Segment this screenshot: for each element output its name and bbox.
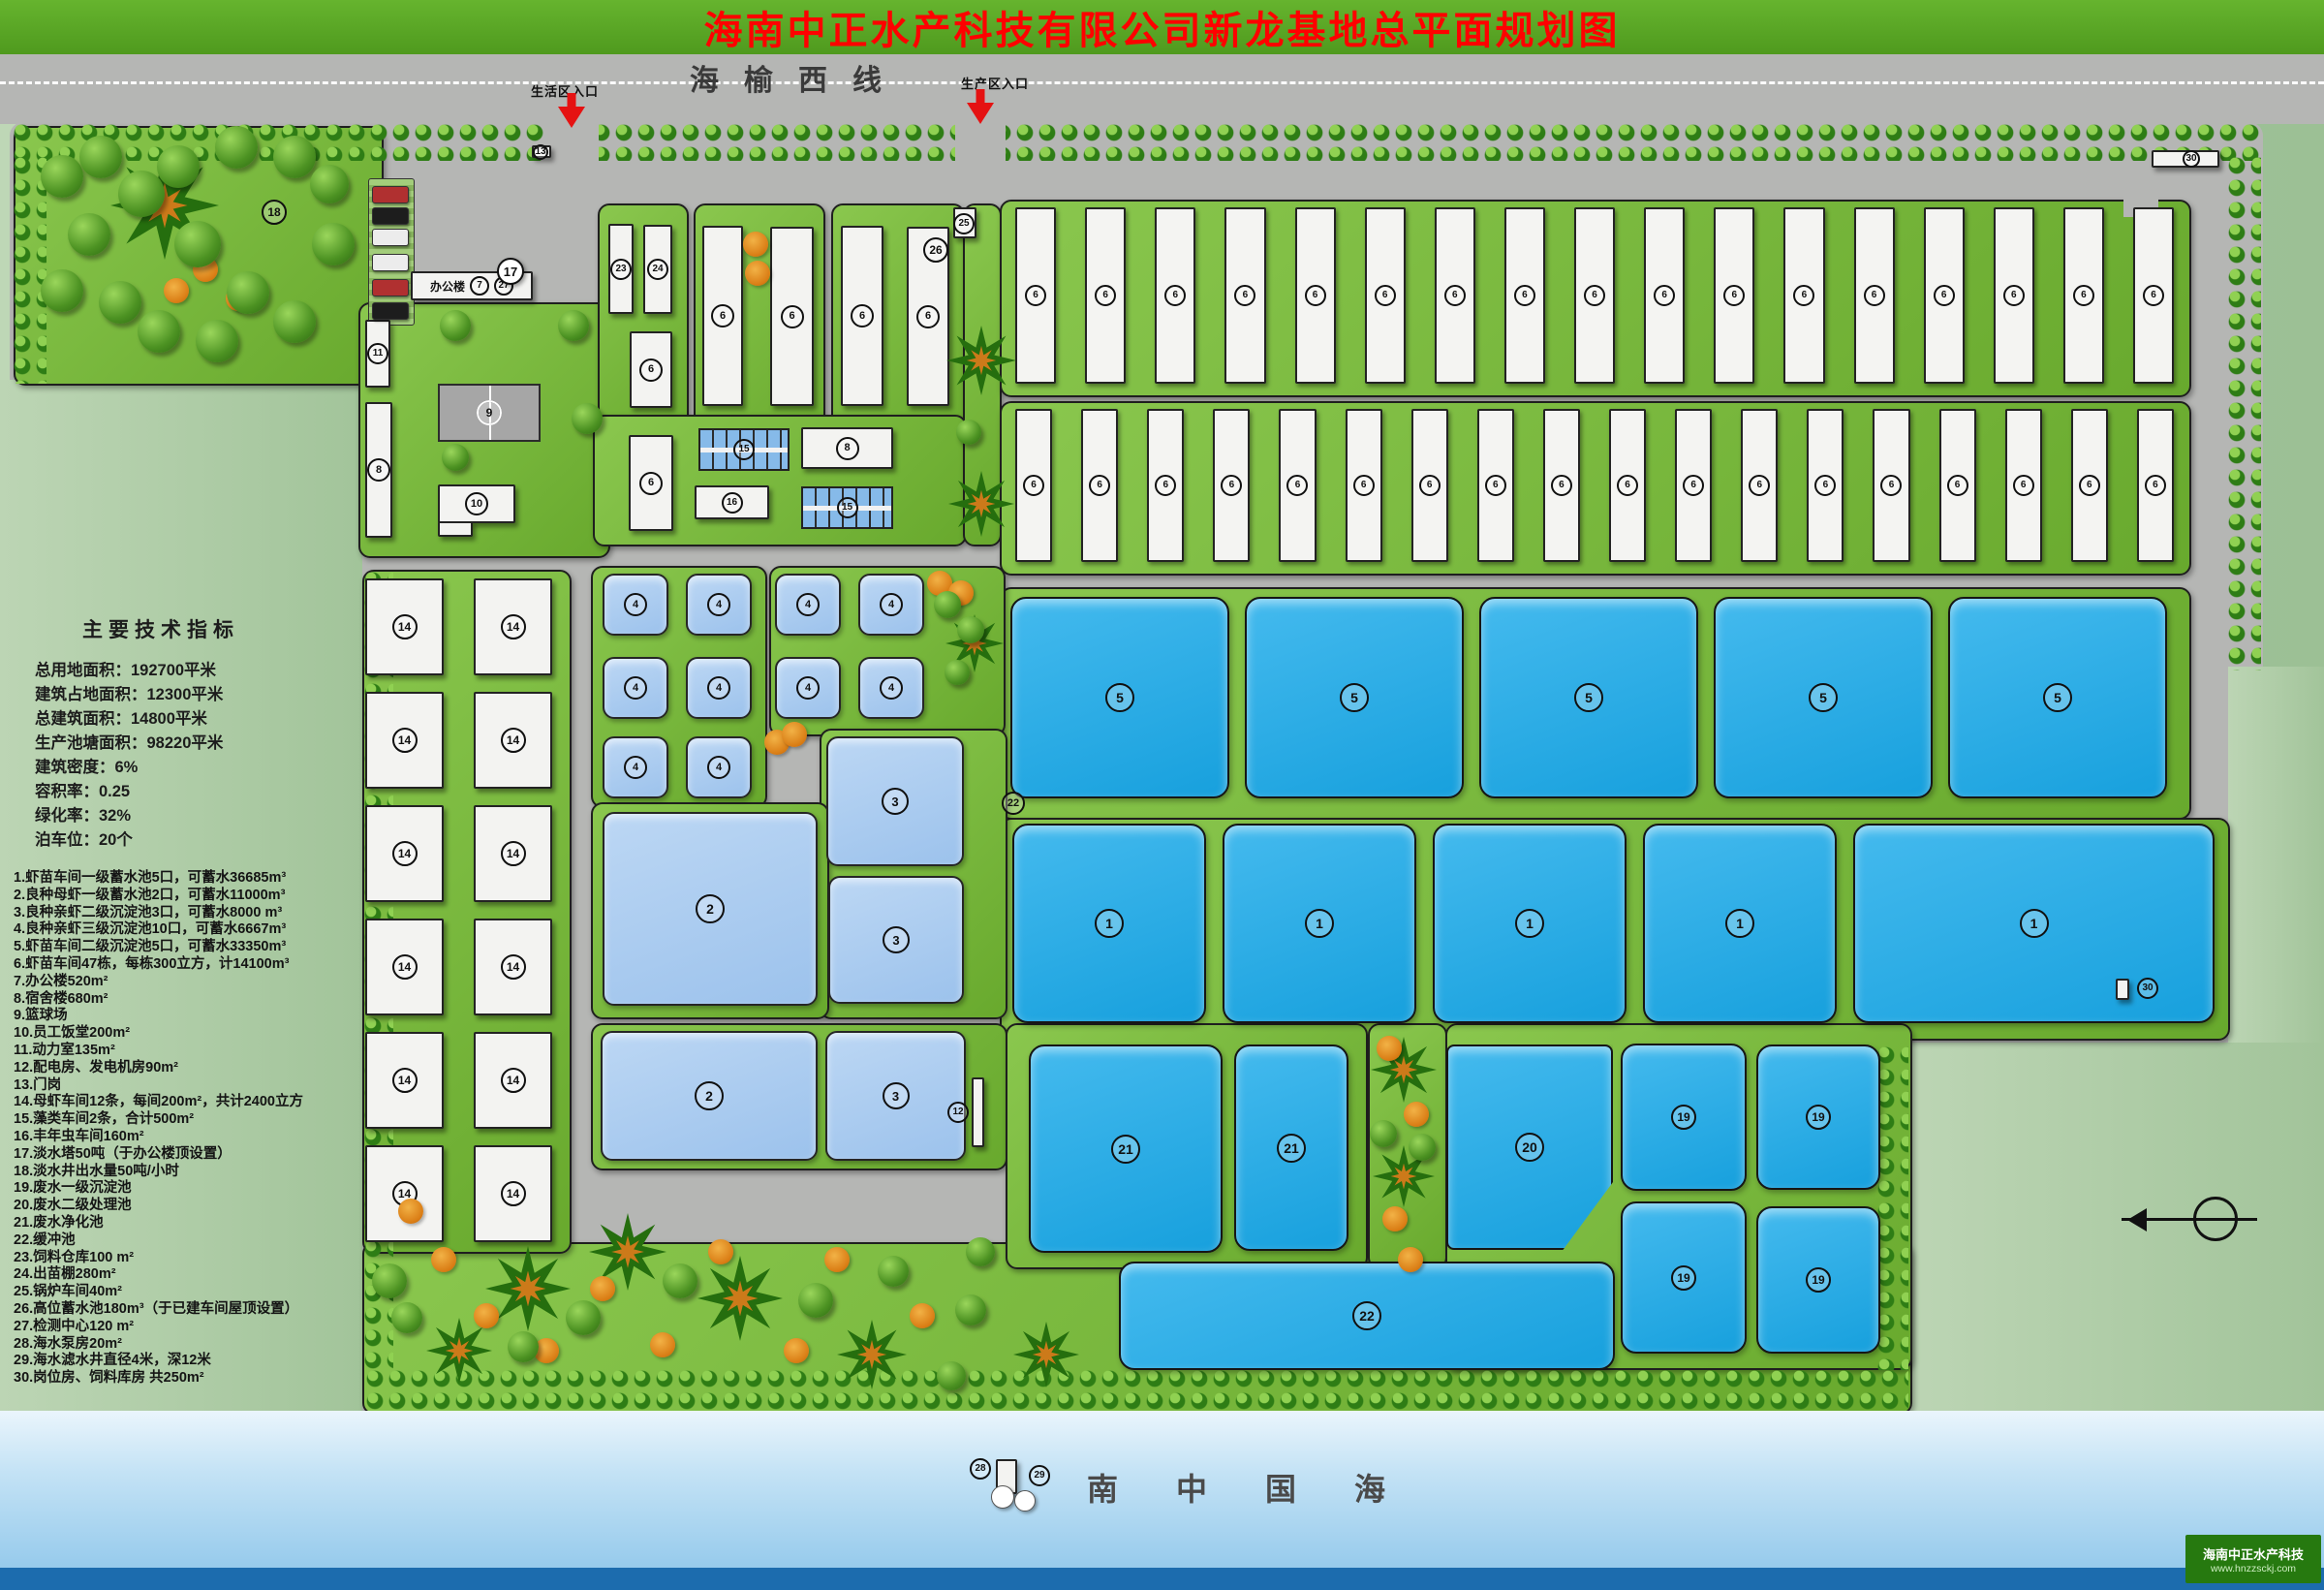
- flower-bush-icon: [910, 1303, 935, 1328]
- label-circle-5: 5: [1809, 683, 1838, 712]
- label-circle-24: 24: [647, 259, 668, 280]
- storage-pond-2: 2: [601, 1031, 818, 1161]
- legend-line: 21.废水净化池: [14, 1215, 367, 1232]
- label-circle-19: 19: [1671, 1265, 1696, 1291]
- palm-tree-icon: [946, 326, 1016, 395]
- tech-indicator-line: 生产池塘面积：98220平米: [35, 732, 364, 756]
- tree-icon: [138, 310, 180, 353]
- compass-icon: [2122, 1192, 2257, 1250]
- road-centerline: [0, 81, 2324, 84]
- palm-tree-icon: [948, 471, 1014, 537]
- tree-icon: [572, 403, 603, 434]
- storage-pond-1: 1: [1643, 824, 1837, 1023]
- label-circle-6: 6: [1793, 285, 1814, 306]
- label-circle-14: 14: [392, 954, 418, 980]
- shrimp-shed: 6: [1609, 409, 1646, 562]
- label-circle-6: 6: [851, 304, 874, 327]
- sediment-pond-4: 4: [686, 657, 752, 719]
- parked-car: [372, 302, 409, 320]
- gate-house-label: 13: [533, 144, 548, 160]
- sediment-pond-4: 4: [858, 574, 924, 636]
- broodstock-shed-14: 14: [474, 1145, 552, 1242]
- legend-line: 24.出苗棚280m²: [14, 1266, 367, 1284]
- label-circle-14: 14: [501, 1068, 526, 1093]
- label-circle-6: 6: [1221, 475, 1242, 496]
- label-circle-6: 6: [1444, 285, 1466, 306]
- legend-line: 18.淡水井出水量50吨/小时: [14, 1164, 367, 1181]
- label-circle-14: 14: [392, 1068, 418, 1093]
- sediment-pond-3: 3: [828, 876, 964, 1004]
- label-circle-10: 10: [465, 492, 488, 515]
- palm-core: [723, 1281, 759, 1317]
- sediment-pond-4: 4: [858, 657, 924, 719]
- label-circle-21: 21: [1111, 1135, 1140, 1164]
- sea-area: [0, 1411, 2324, 1590]
- palm-core: [1033, 1341, 1061, 1369]
- palm-tree-icon: [1013, 1322, 1079, 1387]
- tree-icon: [215, 126, 258, 169]
- label-circle-5: 5: [1340, 683, 1369, 712]
- hedge-east-lower: [1875, 1044, 1908, 1370]
- hedge-south: [364, 1368, 1908, 1411]
- tech-indicators-lines: 总用地面积：192700平米建筑占地面积：12300平米总建筑面积：14800平…: [35, 659, 364, 853]
- label-circle-9: 9: [477, 400, 502, 425]
- label-circle-4: 4: [796, 593, 820, 616]
- label-circle-6: 6: [639, 472, 663, 495]
- tree-icon: [41, 269, 83, 312]
- canteen: 10: [438, 484, 515, 523]
- shrimp-shed: 6: [1675, 409, 1712, 562]
- legend-line: 1.虾苗车间一级蓄水池5口，可蓄水36685m³: [14, 870, 367, 888]
- palm-core: [967, 346, 996, 375]
- label-circle-6: 6: [2013, 475, 2034, 496]
- label-circle-6: 6: [2073, 285, 2094, 306]
- tree-icon: [157, 145, 200, 188]
- tree-icon: [798, 1283, 833, 1318]
- label-circle-6: 6: [1095, 285, 1116, 306]
- buffer-strip-label: 22: [1002, 792, 1025, 815]
- tree-icon: [508, 1331, 539, 1362]
- broodstock-shed-14: 14: [474, 919, 552, 1015]
- label-circle-5: 5: [1105, 683, 1134, 712]
- legend-panel: 1.虾苗车间一级蓄水池5口，可蓄水36685m³2.良种母虾一级蓄水池2口，可蓄…: [14, 870, 367, 1387]
- tech-indicator-line: 容积率：0.25: [35, 780, 364, 804]
- shrimp-shed: 6: [1807, 409, 1844, 562]
- label-circle-3: 3: [883, 926, 910, 953]
- label-circle-2: 2: [696, 894, 725, 923]
- broodstock-shed-14: 14: [365, 805, 444, 902]
- shrimp-shed: 6: [1224, 207, 1265, 384]
- shrimp-shed: 6: [1741, 409, 1778, 562]
- algae-shed: 15: [698, 428, 790, 471]
- label-circle-19: 19: [1806, 1105, 1831, 1130]
- broodstock-shed-14: 14: [365, 578, 444, 675]
- storage-pond-2: 2: [603, 812, 818, 1006]
- label-circle-19: 19: [1806, 1267, 1831, 1293]
- label-circle-6: 6: [1683, 475, 1704, 496]
- storage-pond-1: 1: [1012, 824, 1206, 1023]
- shrimp-shed: 6: [1435, 207, 1475, 384]
- shrimp-shed: 6: [1873, 409, 1909, 562]
- tree-icon: [1409, 1134, 1436, 1161]
- label-circle-4: 4: [880, 676, 903, 700]
- label-circle-6: 6: [1654, 285, 1675, 306]
- legend-line: 4.良种亲虾三级沉淀池10口，可蓄水6667m³: [14, 921, 367, 939]
- shrimp-shed: 6: [2133, 207, 2174, 384]
- tech-indicator-line: 建筑密度：6%: [35, 756, 364, 780]
- shrimp-shed: 6: [1783, 207, 1824, 384]
- hedge-east-upper: [2226, 155, 2261, 670]
- tech-indicator-line: 总建筑面积：14800平米: [35, 707, 364, 732]
- legend-line: 19.废水一级沉淀池: [14, 1180, 367, 1198]
- label-circle-6: 6: [639, 359, 663, 382]
- legend-line: 7.办公楼520m²: [14, 974, 367, 991]
- tree-icon: [273, 136, 316, 178]
- legend-line: 30.岗位房、饲料库房 共250m²: [14, 1370, 367, 1387]
- broodstock-shed-14: 14: [474, 1032, 552, 1129]
- tree-icon: [1370, 1120, 1397, 1147]
- parked-car: [372, 279, 409, 296]
- legend-line: 12.配电房、发电机房90m²: [14, 1060, 367, 1077]
- tree-icon: [442, 444, 469, 471]
- tree-icon: [174, 221, 221, 267]
- legend-line: 9.篮球场: [14, 1008, 367, 1025]
- tree-icon: [937, 1361, 966, 1390]
- guard-feed-store-label: 30: [2183, 150, 2200, 168]
- label-circle-4: 4: [624, 593, 647, 616]
- shrimp-shed: 6: [1504, 207, 1545, 384]
- tree-icon: [68, 213, 110, 256]
- feed-warehouse: 23: [608, 224, 634, 314]
- entry-arrow-living: [558, 93, 585, 132]
- parked-car: [372, 186, 409, 203]
- label-circle-1: 1: [1515, 909, 1544, 938]
- flower-bush-icon: [590, 1276, 615, 1301]
- shrimp-shed: 6: [2071, 409, 2108, 562]
- tree-icon: [196, 320, 238, 362]
- label-circle-6: 6: [1514, 285, 1535, 306]
- label-circle-6: 6: [916, 305, 940, 328]
- legend-line: 29.海水滤水井直径4米，深12米: [14, 1353, 367, 1370]
- label-circle-1: 1: [1305, 909, 1334, 938]
- label-circle-4: 4: [796, 676, 820, 700]
- sediment-pond-5: 5: [1245, 597, 1464, 798]
- label-circle-6: 6: [781, 305, 804, 328]
- tree-icon: [41, 155, 83, 198]
- tree-icon: [558, 310, 589, 341]
- palm-core: [968, 490, 996, 518]
- shrimp-shed: 6: [2137, 409, 2174, 562]
- shrimp-shed: 6: [1346, 409, 1382, 562]
- label-circle-6: 6: [711, 304, 734, 327]
- label-circle-6: 6: [1814, 475, 1836, 496]
- logo-company-name: 海南中正水产科技: [2203, 1544, 2304, 1563]
- label-circle-14: 14: [392, 841, 418, 866]
- purification-pond: 21: [1029, 1044, 1223, 1253]
- label-circle-6: 6: [1305, 285, 1326, 306]
- label-circle-1: 1: [1095, 909, 1124, 938]
- shrimp-shed: 6: [1543, 409, 1580, 562]
- shrimp-shed: 6: [630, 331, 672, 408]
- flower-bush-icon: [824, 1247, 850, 1272]
- label-circle-6: 6: [1419, 475, 1441, 496]
- label-circle-6: 6: [2003, 285, 2025, 306]
- shrimp-shed: 6: [1644, 207, 1685, 384]
- legend-line: 13.门岗: [14, 1077, 367, 1095]
- shrimp-shed: 6: [1213, 409, 1250, 562]
- legend-line: 14.母虾车间12条，每间200m²，共计2400立方: [14, 1094, 367, 1111]
- tech-indicator-line: 建筑占地面积：12300平米: [35, 683, 364, 707]
- flower-bush-icon: [1377, 1036, 1402, 1061]
- label-circle-6: 6: [1723, 285, 1745, 306]
- storage-pond-1: 1: [1223, 824, 1416, 1023]
- shrimp-shed: 6: [1714, 207, 1754, 384]
- sediment-pond-5: 5: [1479, 597, 1698, 798]
- parked-car: [372, 229, 409, 246]
- tech-indicator-line: 总用地面积：192700平米: [35, 659, 364, 683]
- guard-post-east: [2116, 979, 2129, 1000]
- purification-pond: 21: [1234, 1044, 1348, 1251]
- company-logo: 海南中正水产科技 www.hnzzsckj.com: [2185, 1535, 2321, 1583]
- basketball-court: 9: [438, 384, 541, 442]
- flower-bush-icon: [1382, 1206, 1408, 1231]
- label-circle-6: 6: [1164, 285, 1186, 306]
- flower-bush-icon: [1398, 1247, 1423, 1272]
- label-circle-6: 6: [1155, 475, 1176, 496]
- broodstock-shed-14: 14: [365, 1032, 444, 1129]
- tree-icon: [966, 1237, 995, 1266]
- palm-core: [511, 1271, 546, 1307]
- shrimp-shed: 6: [702, 226, 743, 406]
- shrimp-shed: 6: [1924, 207, 1965, 384]
- tree-icon: [956, 420, 981, 445]
- label-circle-14: 14: [501, 728, 526, 753]
- sediment-pond-5: 5: [1714, 597, 1933, 798]
- palm-tree-icon: [837, 1320, 907, 1389]
- buffer-pond: 22: [1119, 1262, 1615, 1370]
- canteen-wing: [438, 521, 473, 537]
- site-plan-stage: 海南中正水产科技有限公司新龙基地总平面规划图 9办公楼7271711810232…: [0, 0, 2324, 1590]
- legend-line: 5.虾苗车间二级沉淀池5口，可蓄水33350m³: [14, 939, 367, 956]
- label-circle-6: 6: [1584, 285, 1605, 306]
- tree-icon: [878, 1256, 909, 1287]
- parked-car: [372, 254, 409, 271]
- label-circle-6: 6: [2145, 475, 2166, 496]
- sediment-pond-5: 5: [1948, 597, 2167, 798]
- shrimp-shed: 6: [629, 435, 673, 531]
- label-circle-6: 6: [2143, 285, 2164, 306]
- shrimp-shed: 6: [1411, 409, 1448, 562]
- artemia-shed: 16: [695, 485, 769, 519]
- shrimp-shed: 6: [1574, 207, 1615, 384]
- palm-core: [611, 1235, 644, 1268]
- tech-indicators-panel: 主要技术指标 总用地面积：192700平米建筑占地面积：12300平米总建筑面积…: [35, 614, 364, 853]
- broodstock-shed-14: 14: [365, 1145, 444, 1242]
- shrimp-shed: 6: [1994, 207, 2034, 384]
- flower-bush-icon: [745, 261, 770, 286]
- legend-line: 26.高位蓄水池180m³（于已建车间屋顶设置）: [14, 1301, 367, 1319]
- freshwater-well-label: 18: [262, 200, 287, 225]
- label-circle-6: 6: [1375, 285, 1396, 306]
- legend-line: 20.废水二级处理池: [14, 1198, 367, 1215]
- generator-room: [972, 1077, 984, 1147]
- tree-icon: [227, 271, 269, 314]
- tree-icon: [957, 616, 984, 643]
- label-circle-14: 14: [392, 614, 418, 639]
- legend-line: 22.缓冲池: [14, 1232, 367, 1250]
- legend-line: 8.宿舍楼680m²: [14, 991, 367, 1009]
- broodstock-shed-14: 14: [474, 805, 552, 902]
- power-room: 11: [365, 320, 390, 388]
- storage-pond-1: 1: [1853, 824, 2215, 1023]
- label-circle-15: 15: [837, 497, 858, 518]
- label-circle-21: 21: [1277, 1134, 1306, 1163]
- legend-line: 25.锅炉车间40m²: [14, 1284, 367, 1301]
- shrimp-shed: 6: [2063, 207, 2104, 384]
- label-circle-6: 6: [2079, 475, 2100, 496]
- generator-label: 12: [947, 1102, 969, 1123]
- palm-core: [1391, 1164, 1417, 1190]
- shrimp-shed: 6: [1015, 409, 1052, 562]
- label-circle-6: 6: [1617, 475, 1638, 496]
- label-circle-1: 1: [1725, 909, 1754, 938]
- office-building-label: 办公楼: [430, 278, 465, 295]
- shrimp-shed: 6: [1015, 207, 1056, 384]
- label-circle-5: 5: [1574, 683, 1603, 712]
- sediment-pond-5: 5: [1010, 597, 1229, 798]
- label-circle-6: 6: [1749, 475, 1770, 496]
- flower-bush-icon: [743, 232, 768, 257]
- shrimp-shed: 6: [1939, 409, 1976, 562]
- label-circle-11: 11: [367, 343, 388, 364]
- label-circle-4: 4: [707, 676, 730, 700]
- label-circle-8: 8: [836, 437, 859, 460]
- sediment-pond-4: 4: [686, 574, 752, 636]
- legend-line: 2.良种母虾一级蓄水池2口，可蓄水11000m³: [14, 888, 367, 905]
- tree-icon: [391, 1302, 422, 1333]
- flower-bush-icon: [708, 1239, 733, 1264]
- sea-deep-band: [0, 1568, 2324, 1590]
- tree-icon: [99, 281, 141, 324]
- legend-line: 15.藻类车间2条，合计500m²: [14, 1111, 367, 1129]
- algae-shed: 15: [801, 486, 893, 529]
- sediment-pond-4: 4: [775, 574, 841, 636]
- tree-icon: [118, 171, 165, 217]
- sediment-pond-3: 3: [825, 1031, 966, 1161]
- broodstock-shed-14: 14: [365, 919, 444, 1015]
- label-circle-20: 20: [1515, 1133, 1544, 1162]
- label-circle-2: 2: [695, 1081, 724, 1110]
- label-circle-6: 6: [1025, 285, 1046, 306]
- sediment-pond-4: 4: [603, 736, 668, 798]
- shrimp-shed: 6: [1295, 207, 1336, 384]
- label-circle-7: 7: [470, 276, 489, 296]
- logo-website: www.hnzzsckj.com: [2211, 1563, 2296, 1574]
- tree-icon: [566, 1300, 601, 1335]
- shrimp-shed: 6: [1854, 207, 1895, 384]
- tree-icon: [934, 591, 961, 618]
- label-circle-15: 15: [733, 439, 755, 460]
- dormitory-west: 8: [365, 402, 392, 538]
- tree-icon: [273, 300, 316, 343]
- label-circle-4: 4: [707, 756, 730, 779]
- wastewater-pond: 19: [1621, 1044, 1747, 1191]
- tech-indicators-title: 主要技术指标: [35, 614, 287, 643]
- road-name: 海榆西线: [690, 56, 907, 99]
- sediment-pond-4: 4: [686, 736, 752, 798]
- broodstock-shed-14: 14: [365, 692, 444, 789]
- label-circle-8: 8: [367, 458, 390, 482]
- tree-icon: [310, 165, 349, 203]
- guard-post-east-label: 30: [2137, 978, 2158, 999]
- label-circle-6: 6: [1485, 475, 1506, 496]
- label-circle-19: 19: [1671, 1105, 1696, 1130]
- tree-icon: [955, 1294, 986, 1325]
- label-circle-16: 16: [722, 492, 743, 514]
- label-circle-6: 6: [1089, 475, 1110, 496]
- flower-bush-icon: [164, 278, 189, 303]
- label-circle-3: 3: [883, 1082, 910, 1109]
- entry-arrow-production: [967, 89, 994, 128]
- label-circle-4: 4: [880, 593, 903, 616]
- water-tower-label: 17: [497, 258, 524, 285]
- tech-indicator-line: 泊车位：20个: [35, 828, 364, 853]
- storage-pond-1: 1: [1433, 824, 1627, 1023]
- shrimp-shed: 6: [770, 227, 814, 406]
- compass-arrowhead: [2116, 1208, 2147, 1231]
- label-circle-23: 23: [610, 259, 632, 280]
- arrow-head: [967, 103, 994, 138]
- shed-row-north: 66666666666666666: [1015, 207, 2174, 384]
- fry-shed: 24: [643, 225, 672, 314]
- label-circle-14: 14: [501, 614, 526, 639]
- label-circle-6: 6: [1353, 475, 1375, 496]
- label-circle-4: 4: [707, 593, 730, 616]
- tech-indicator-line: 绿化率：32%: [35, 804, 364, 828]
- legend-line: 28.海水泵房20m²: [14, 1336, 367, 1354]
- label-circle-6: 6: [1947, 475, 1968, 496]
- label-circle-14: 14: [501, 954, 526, 980]
- parked-car: [372, 207, 409, 225]
- hedge-north: [12, 122, 2261, 161]
- wastewater-pond: 19: [1621, 1201, 1747, 1354]
- wastewater-pond: 19: [1756, 1044, 1880, 1190]
- label-circle-6: 6: [1023, 475, 1044, 496]
- tree-icon: [79, 136, 122, 178]
- tree-icon: [372, 1263, 407, 1298]
- legend-line: 3.良种亲虾二级沉淀池3口，可蓄水8000 m³: [14, 905, 367, 922]
- shrimp-shed: 6: [2005, 409, 2042, 562]
- broodstock-shed-14: 14: [474, 578, 552, 675]
- compass-ring: [2193, 1197, 2238, 1241]
- label-circle-22: 22: [1352, 1301, 1381, 1330]
- label-circle-6: 6: [1934, 285, 1955, 306]
- palm-core: [857, 1340, 886, 1369]
- broodstock-shed-14: 14: [474, 692, 552, 789]
- palm-core: [446, 1337, 474, 1365]
- rooftop-tank-label: 26: [923, 237, 948, 263]
- label-circle-6: 6: [1864, 285, 1885, 306]
- label-circle-1: 1: [2020, 909, 2049, 938]
- label-circle-4: 4: [624, 756, 647, 779]
- shrimp-shed: 6: [841, 226, 883, 406]
- sediment-pond-4: 4: [603, 657, 668, 719]
- flower-bush-icon: [650, 1332, 675, 1357]
- label-circle-14: 14: [501, 841, 526, 866]
- shrimp-shed: 6: [1279, 409, 1316, 562]
- shed-row-south: 666666666666666666: [1015, 409, 2174, 562]
- legend-line: 27.检测中心120 m²: [14, 1319, 367, 1336]
